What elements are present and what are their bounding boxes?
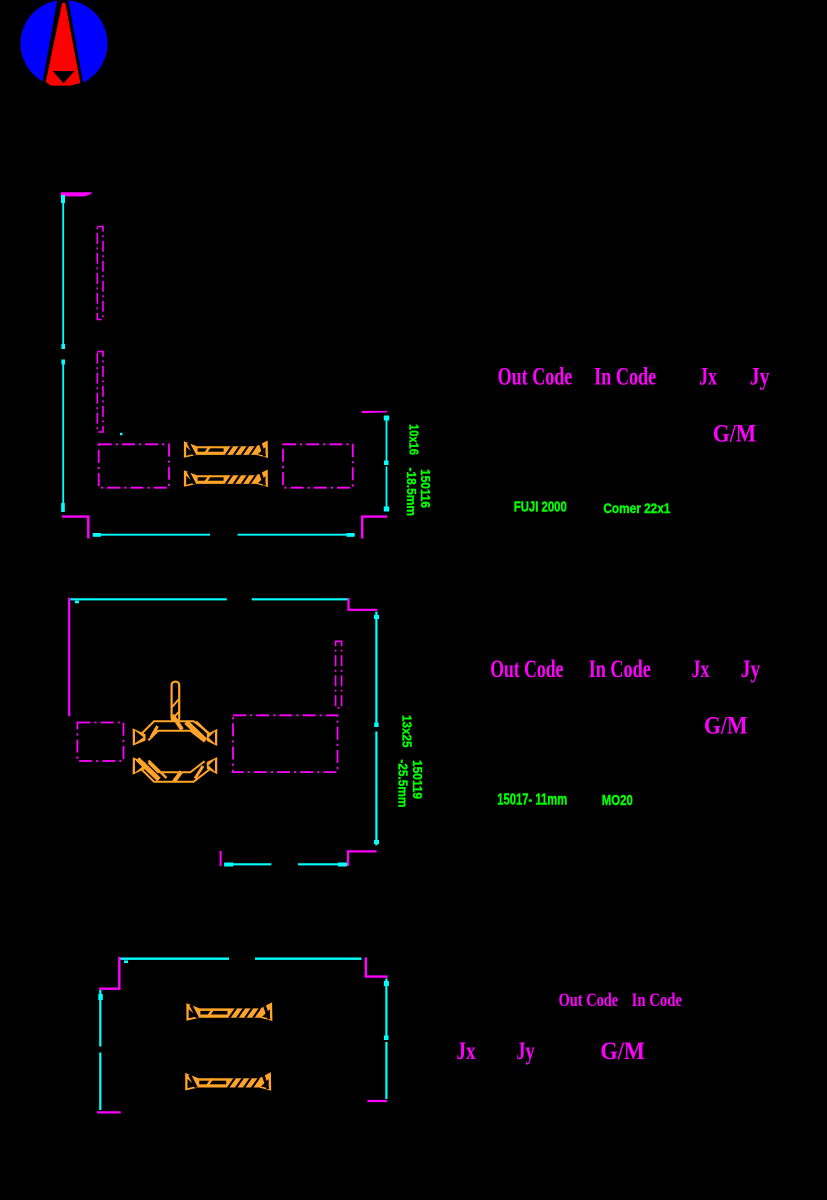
svg-text:FUJI 2000: FUJI 2000 xyxy=(514,499,567,516)
svg-text:G/M: G/M xyxy=(600,1038,645,1065)
svg-text:Out Code: Out Code xyxy=(498,364,573,391)
svg-text:Jy: Jy xyxy=(516,1038,535,1065)
svg-text:15017- 11mm: 15017- 11mm xyxy=(497,791,567,808)
svg-text:Jy: Jy xyxy=(750,364,770,391)
svg-text:10x16: 10x16 xyxy=(407,424,422,455)
svg-text:Jy: Jy xyxy=(741,656,761,683)
svg-text:Out Code: Out Code xyxy=(490,656,563,683)
svg-text:Jx: Jx xyxy=(692,656,710,683)
svg-text:150116: 150116 xyxy=(418,469,433,508)
svg-text:G/M: G/M xyxy=(704,712,748,739)
svg-text:In Code: In Code xyxy=(632,990,682,1011)
svg-text:-18.5mm: -18.5mm xyxy=(404,468,419,517)
svg-text:MO20: MO20 xyxy=(602,792,633,809)
svg-text:G/M: G/M xyxy=(713,421,756,448)
svg-text:150119: 150119 xyxy=(410,760,425,799)
svg-text:Comer 22x1: Comer 22x1 xyxy=(603,500,670,516)
svg-text:-25.5mm: -25.5mm xyxy=(396,759,411,807)
svg-text:Jx: Jx xyxy=(699,364,717,391)
svg-text:13x25: 13x25 xyxy=(399,715,414,748)
svg-text:Out Code: Out Code xyxy=(559,990,619,1011)
svg-text:Jx: Jx xyxy=(456,1038,476,1065)
svg-text:In Code: In Code xyxy=(594,364,656,391)
svg-text:In Code: In Code xyxy=(589,656,651,683)
